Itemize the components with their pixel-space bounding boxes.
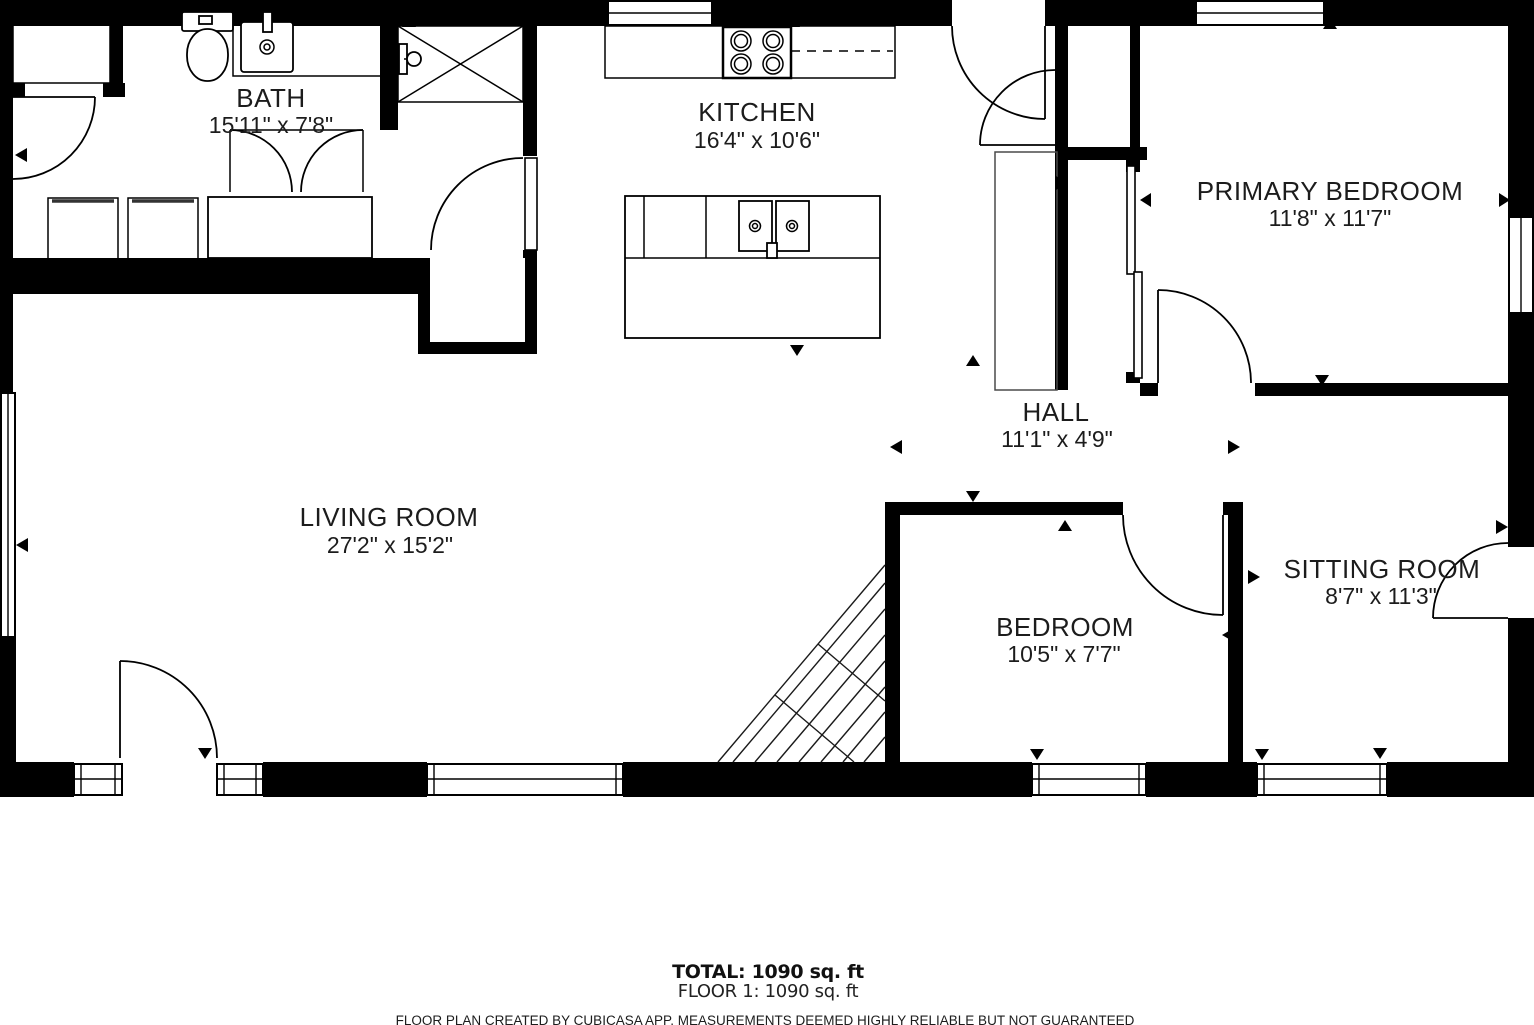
shower-fixture	[398, 26, 523, 102]
kitchen-island	[625, 196, 880, 338]
closet-door-top-left	[13, 97, 95, 179]
floor-area-label: FLOOR 1: 1090 sq. ft	[678, 981, 859, 1002]
floor-plan: BATH 15'11" x 7'8" KITCHEN 16'4" x 10'6"…	[0, 0, 1534, 1025]
room-dims-hall: 11'1" x 4'9"	[1001, 426, 1113, 452]
room-name-bedroom: BEDROOM	[996, 612, 1134, 642]
entry-door	[952, 26, 1045, 119]
hall-closet-sliding-door	[1127, 166, 1142, 378]
footer: TOTAL: 1090 sq. ft FLOOR 1: 1090 sq. ft …	[396, 961, 1135, 1025]
stairs	[718, 565, 885, 762]
stove-fixture	[723, 27, 791, 78]
room-dims-bath: 15'11" x 7'8"	[209, 112, 333, 138]
room-labels: BATH 15'11" x 7'8" KITCHEN 16'4" x 10'6"…	[209, 83, 1481, 667]
room-name-living-room: LIVING ROOM	[300, 502, 479, 532]
room-name-kitchen: KITCHEN	[698, 97, 816, 127]
total-area-label: TOTAL: 1090 sq. ft	[672, 961, 864, 983]
window-living-bottom-2	[217, 764, 263, 795]
kitchen-hall-door	[980, 70, 1055, 145]
room-name-hall: HALL	[1022, 397, 1089, 427]
room-name-bath: BATH	[236, 83, 305, 113]
room-dims-primary-bedroom: 11'8" x 11'7"	[1269, 205, 1392, 231]
room-name-sitting-room: SITTING ROOM	[1284, 554, 1481, 584]
disclaimer-label: FLOOR PLAN CREATED BY CUBICASA APP. MEAS…	[396, 1013, 1135, 1025]
room-name-primary-bedroom: PRIMARY BEDROOM	[1197, 176, 1464, 206]
bath-door	[431, 158, 537, 250]
window-living-bottom-long	[427, 764, 623, 795]
room-dims-bedroom: 10'5" x 7'7"	[1007, 641, 1120, 667]
hall-cabinet	[995, 152, 1057, 390]
washer-fixture	[48, 198, 118, 260]
toilet-fixture	[182, 12, 233, 81]
primary-bedroom-door	[1158, 290, 1251, 383]
window-kitchen-top	[608, 1, 712, 25]
dryer-fixture	[128, 198, 198, 260]
floor-plan-page: BATH 15'11" x 7'8" KITCHEN 16'4" x 10'6"…	[0, 0, 1534, 1025]
room-dims-sitting-room: 8'7" x 11'3"	[1325, 583, 1437, 609]
room-dims-living-room: 27'2" x 15'2"	[327, 532, 453, 558]
window-bedroom-bottom	[1032, 764, 1146, 795]
window-sitting-bottom	[1257, 764, 1387, 795]
bath-closet-double-doors	[208, 130, 372, 258]
window-primary-right	[1509, 217, 1533, 313]
window-primary-top	[1196, 1, 1324, 25]
window-living-left	[1, 393, 15, 637]
bedroom-door	[1123, 515, 1223, 615]
living-room-door	[120, 661, 217, 758]
window-living-bottom-1	[74, 764, 122, 795]
room-dims-kitchen: 16'4" x 10'6"	[694, 127, 820, 153]
